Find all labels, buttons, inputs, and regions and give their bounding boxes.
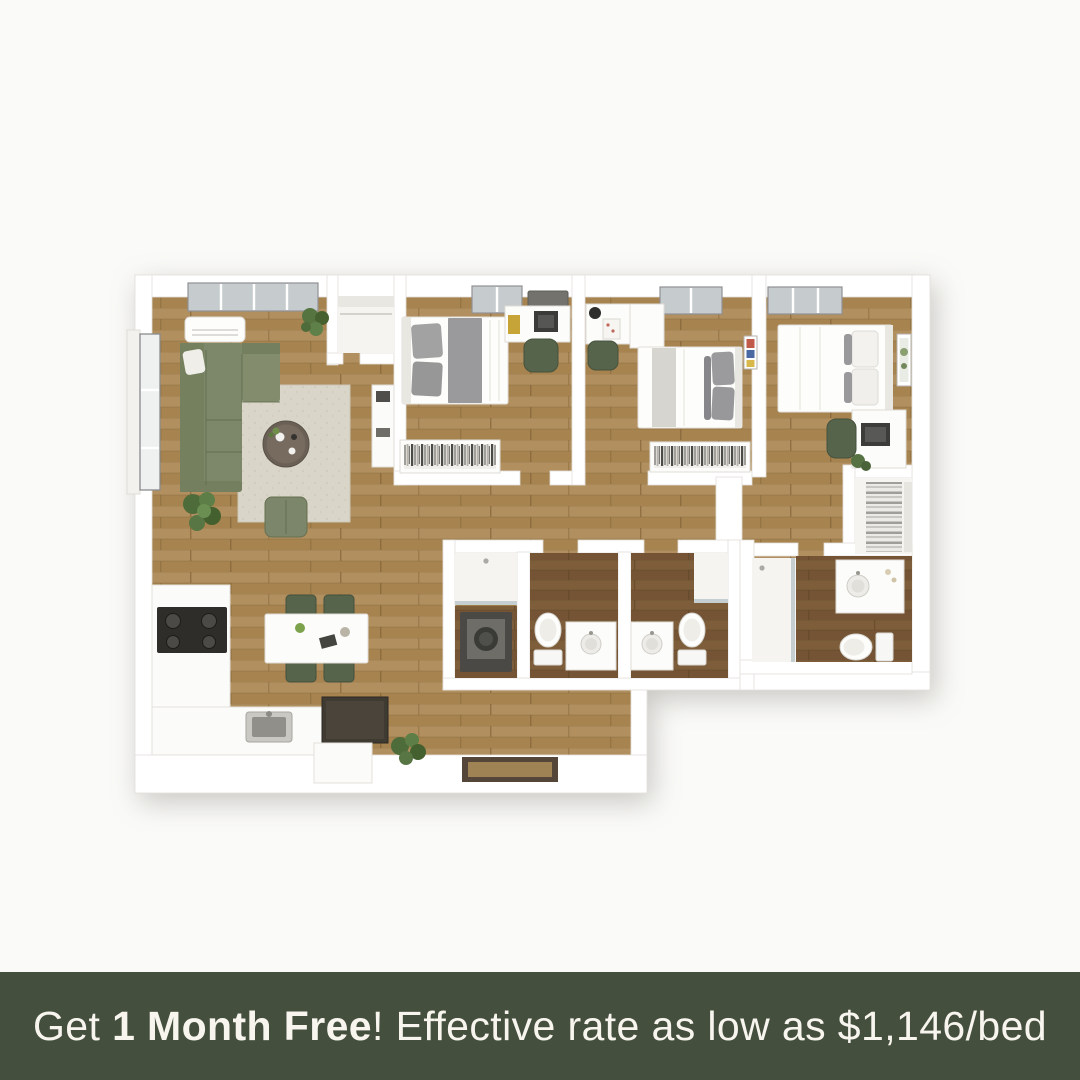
bed-1 bbox=[402, 317, 508, 404]
desk-1 bbox=[505, 306, 570, 342]
living-room-window-top bbox=[188, 283, 318, 311]
living-room-window-left bbox=[127, 330, 160, 494]
wardrobe-2 bbox=[630, 304, 664, 348]
floor-plan bbox=[0, 0, 1080, 972]
desk-2 bbox=[586, 304, 630, 344]
floor-plan-area bbox=[0, 0, 1080, 972]
entry-closet bbox=[338, 296, 394, 353]
promo-text-offer: 1 Month Free bbox=[112, 1003, 372, 1049]
desk-chair-2 bbox=[588, 341, 618, 370]
bed-2 bbox=[638, 347, 742, 428]
bathroom-2 bbox=[631, 613, 706, 670]
bedroom2-window bbox=[660, 287, 722, 314]
wall-art-3 bbox=[897, 334, 911, 386]
kitchen-sink bbox=[246, 711, 292, 742]
walk-in-closet bbox=[855, 478, 912, 554]
promo-text-suffix: ! Effective rate as low as $1,146/bed bbox=[372, 1003, 1047, 1049]
dining-table bbox=[265, 614, 368, 663]
vanity-1 bbox=[566, 622, 616, 670]
entry-doormat bbox=[462, 757, 558, 782]
bathroom-1 bbox=[534, 613, 616, 670]
laundry-closet bbox=[455, 606, 517, 678]
toilet-2 bbox=[678, 613, 706, 665]
bookshelf-1 bbox=[400, 440, 500, 473]
vanity-3 bbox=[836, 560, 904, 613]
stove bbox=[157, 607, 227, 653]
toilet-3 bbox=[840, 633, 893, 661]
ac-unit bbox=[185, 317, 245, 342]
kitchen-counter-bottom bbox=[152, 707, 326, 755]
side-cabinet bbox=[372, 385, 394, 467]
desk-3 bbox=[851, 410, 906, 471]
desk-chair-1 bbox=[524, 339, 558, 372]
toilet-1 bbox=[534, 613, 562, 665]
vanity-2 bbox=[631, 622, 673, 670]
promo-text: Get 1 Month Free! Effective rate as low … bbox=[33, 1003, 1047, 1050]
bookshelf-2 bbox=[650, 442, 750, 472]
listing-image: Get 1 Month Free! Effective rate as low … bbox=[0, 0, 1080, 1080]
ottoman-pouf bbox=[265, 497, 307, 537]
shower-3 bbox=[752, 558, 796, 662]
promo-banner: Get 1 Month Free! Effective rate as low … bbox=[0, 972, 1080, 1080]
shower-1 bbox=[455, 553, 517, 605]
wall-art-2 bbox=[744, 336, 757, 369]
desk-chair-3 bbox=[827, 419, 856, 458]
bedroom3-window bbox=[768, 287, 842, 314]
bed-3 bbox=[778, 325, 893, 412]
promo-text-prefix: Get bbox=[33, 1003, 112, 1049]
shower-2 bbox=[694, 553, 728, 603]
coffee-table bbox=[263, 421, 309, 467]
